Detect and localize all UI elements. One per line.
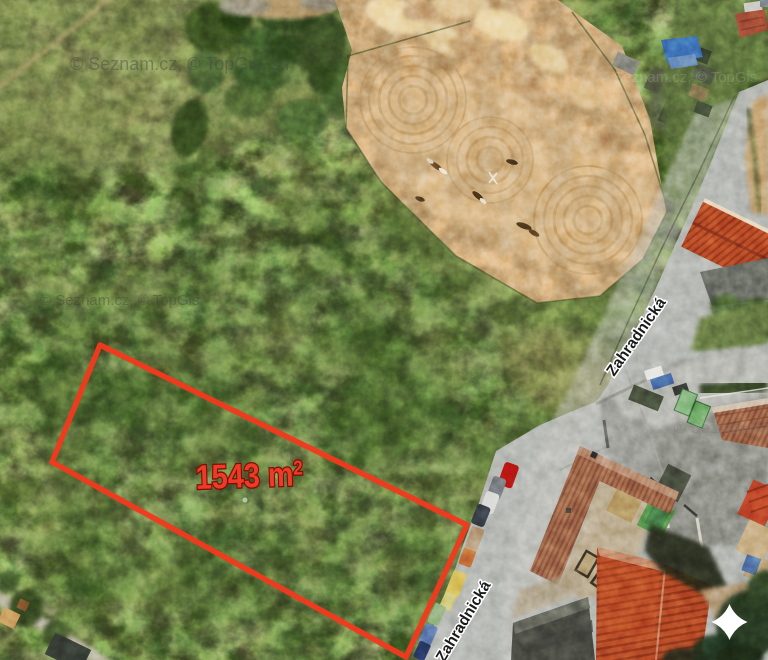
svg-text:© Seznam.cz, © TopGis: © Seznam.cz, © TopGis — [598, 69, 757, 86]
svg-text:1543 m2: 1543 m2 — [195, 454, 304, 497]
svg-text:© Seznam.cz, © TopGis, s.r: © Seznam.cz, © TopGis, s.r — [70, 54, 291, 74]
svg-text:© Seznam.cz, © TopGis: © Seznam.cz, © TopGis — [40, 292, 199, 309]
svg-text:© Seznam.cz: © Seznam.cz — [674, 420, 768, 437]
